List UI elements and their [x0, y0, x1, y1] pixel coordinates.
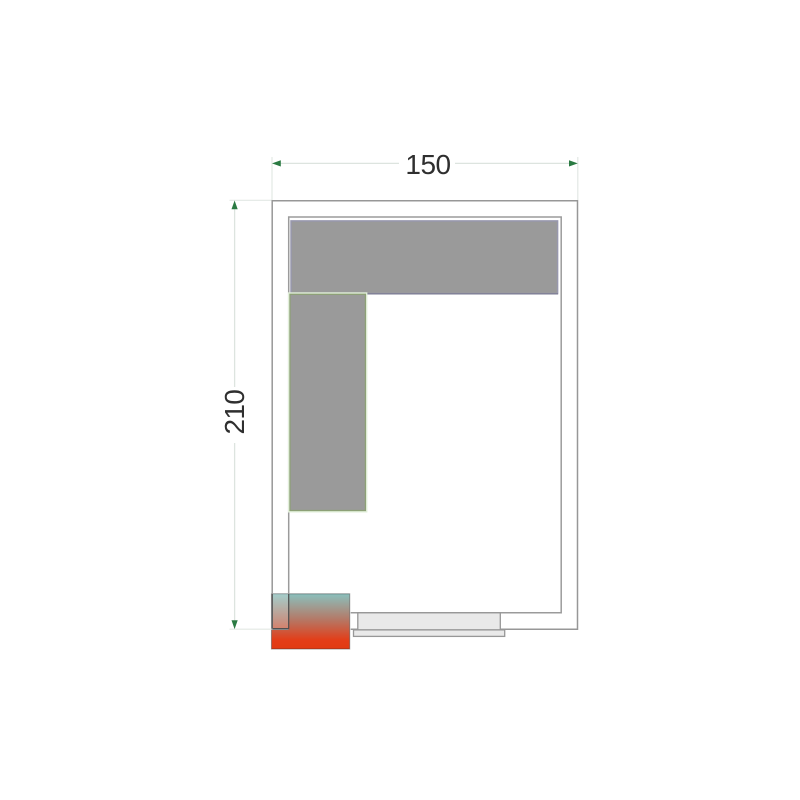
svg-text:210: 210 [219, 390, 250, 435]
svg-text:150: 150 [405, 149, 450, 180]
